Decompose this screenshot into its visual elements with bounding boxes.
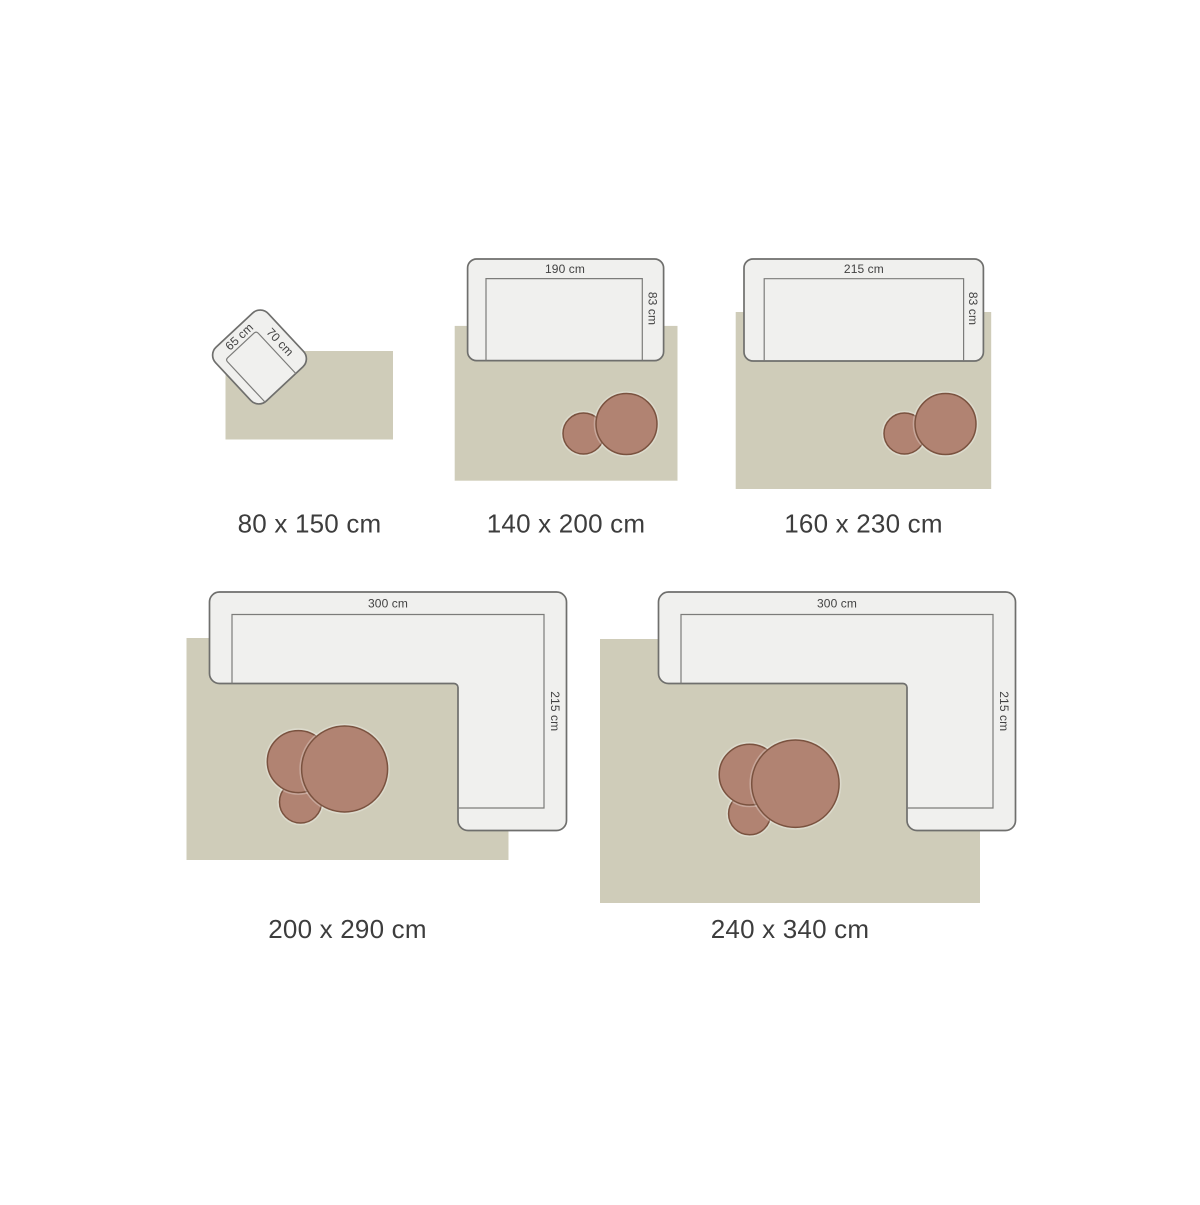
svg-text:240 x 340 cm: 240 x 340 cm [711,914,870,944]
svg-text:215 cm: 215 cm [844,262,884,276]
svg-text:140 x 200 cm: 140 x 200 cm [487,509,646,539]
svg-text:83 cm: 83 cm [966,292,980,325]
svg-text:190 cm: 190 cm [545,262,585,276]
svg-text:300 cm: 300 cm [368,597,408,611]
svg-text:215 cm: 215 cm [997,691,1011,731]
svg-text:215 cm: 215 cm [548,691,562,731]
svg-text:200 x 290 cm: 200 x 290 cm [268,914,427,944]
svg-text:80 x 150 cm: 80 x 150 cm [238,509,382,539]
svg-text:300 cm: 300 cm [817,597,857,611]
svg-text:160 x 230 cm: 160 x 230 cm [784,509,943,539]
svg-text:83 cm: 83 cm [646,292,660,325]
